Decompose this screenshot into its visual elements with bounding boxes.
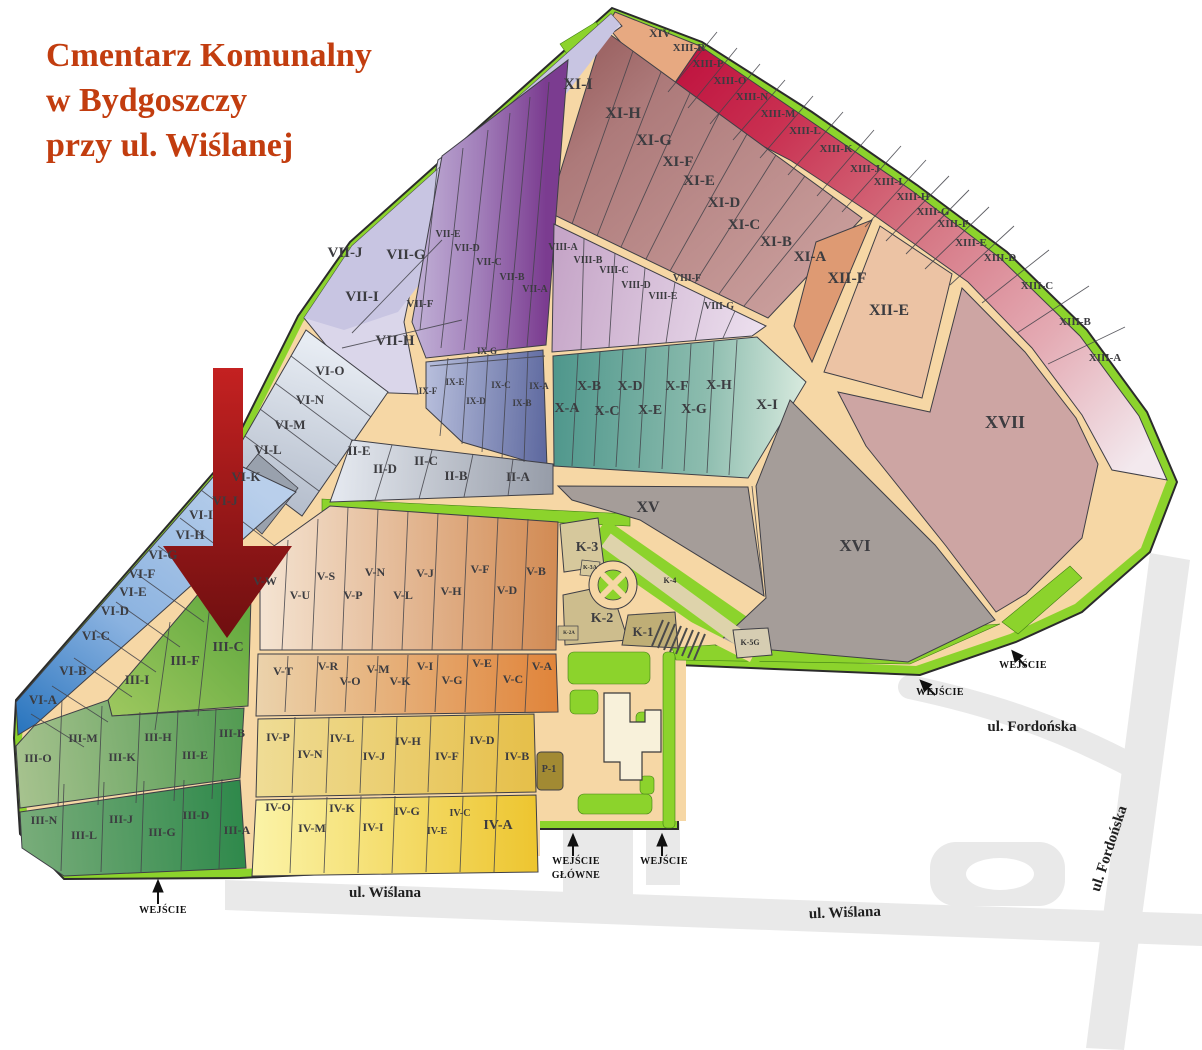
section-label-xiii-o: XIII-O [713,75,746,87]
section-label-xiii-r: XIII-R [673,42,706,54]
section-label-xiii-f: XIII-F [937,218,968,230]
section-label-vi-d: VI-D [101,603,129,618]
section-label-x-i: X-I [756,397,778,413]
section-label-iv-l: IV-L [330,731,354,745]
section-label-v-i: V-I [417,659,434,673]
section-label-x-a: X-A [555,401,581,416]
section-label-viii-f: VIII-F [673,273,701,284]
section-label-vi-n: VI-N [296,392,325,407]
section-label-xiii-e: XIII-E [955,237,987,249]
section-label-xi-g: XI-G [636,132,672,149]
section-label-vii-e: VII-E [435,229,460,240]
section-label-v-k: V-K [389,674,411,688]
section-label-v-s: V-S [317,569,336,583]
section-label-iii-a: III-A [224,823,251,837]
section-label-xi-e: XI-E [683,173,715,189]
section-label-xi-b: XI-B [760,234,792,250]
section-label-vii-b: VII-B [499,272,524,283]
section-label-xiii-n: XIII-N [736,91,768,103]
section-label-xii-e: XII-E [869,302,909,319]
section-label-vii-c: VII-C [476,257,502,268]
section-label-k-1: K-1 [633,624,654,639]
section-label-viii-c: VIII-C [599,265,628,276]
section-label-vi-e: VI-E [119,584,146,599]
small-label-k-2a: K-2A [563,631,575,636]
section-label-vii-f: VII-F [407,298,434,310]
section-label-vii-i: VII-I [345,289,379,305]
section-label-v-g: V-G [441,673,462,687]
section-label-ix-c: IX-C [491,380,511,390]
section-label-xi-f: XI-F [663,154,694,170]
section-label-v-m: V-M [366,662,389,676]
section-label-iii-l: III-L [71,828,97,842]
section-label-ix-e: IX-E [445,377,464,387]
section-label-ii-b: II-B [444,468,467,483]
section-label-xiii-h: XIII-H [896,191,929,203]
section-label-vi-l: VI-L [254,442,282,457]
section-label-iv-p: IV-P [266,730,290,744]
section-label-vi-o: VI-O [316,363,345,378]
section-label-iv-k: IV-K [329,801,355,815]
section-label-iv-n: IV-N [297,747,322,761]
section-label-v-l: V-L [393,588,413,602]
section-label-ix-f: IX-F [419,386,438,396]
section-label-iv-o: IV-O [265,800,291,814]
small-label-k-5g: K-5G [740,638,759,647]
section-label-iii-i: III-I [125,672,150,687]
section-label-iv-m: IV-M [298,821,326,835]
section-label-vii-g: VII-G [386,247,426,263]
entrance-label-główne: GŁÓWNE [552,869,601,881]
section-label-iii-c: III-C [212,640,243,655]
section-label-iv-j: IV-J [363,749,385,763]
section-label-iii-f: III-F [170,654,200,669]
section-label-v-o: V-O [339,674,360,688]
street-label-ul-fordońska: ul. Fordońska [987,719,1077,735]
street-label-ul-wiślana: ul. Wiślana [809,904,882,923]
entrance-label-wejście: WEJŚCIE [916,686,964,698]
section-label-k-3: K-3 [576,540,599,555]
section-label-xi-d: XI-D [708,195,741,211]
section-label-x-e: X-E [638,403,662,418]
section-label-xvii: XVII [985,412,1025,432]
section-label-vi-m: VI-M [274,417,305,432]
section-label-viii-e: VIII-E [649,291,678,302]
section-label-v-e: V-E [472,656,492,670]
section-label-ix-g: IX-G [477,346,497,356]
section-label-vi-k: VI-K [232,469,262,484]
section-label-iii-o: III-O [24,751,51,765]
green-patch [663,652,675,828]
section-label-xiii-a: XIII-A [1089,352,1121,364]
section-label-iv-d: IV-D [469,733,494,747]
section-label-x-c: X-C [595,404,620,419]
section-label-iii-d: III-D [183,808,210,822]
section-label-iii-g: III-G [148,825,175,839]
map-title-line2: w Bydgoszczy [46,79,506,124]
section-label-v-u: V-U [290,588,311,602]
section-label-iv-c: IV-C [450,808,471,819]
section-label-vi-h: VI-H [176,527,205,542]
section-label-iii-j: III-J [109,812,133,826]
section-label-vi-j: VI-J [212,493,238,508]
section-label-vi-a: VI-A [29,692,58,707]
section-label-vii-j: VII-J [327,245,363,261]
section-label-iii-b: III-B [219,726,245,740]
section-label-xiii-l: XIII-L [789,125,821,137]
cemetery-map: XIVXIII-RXIII-PXIII-OXIII-NXIII-MXIII-LX… [0,0,1202,1050]
section-label-iv-g: IV-G [394,804,420,818]
green-patch [578,794,652,814]
section-label-v-n: V-N [365,565,386,579]
section-label-vi-f: VI-F [129,566,156,581]
section-label-xiii-c: XIII-C [1021,280,1053,292]
section-label-ii-a: II-A [506,469,530,484]
section-label-v-d: V-D [497,583,518,597]
section-label-iv-a: IV-A [483,818,513,833]
small-label-k-4: K-4 [664,576,677,585]
green-patch [568,652,650,684]
section-label-viii-g: VIII-G [704,301,734,312]
map-title-line3: przy ul. Wiślanej [46,124,506,169]
section-label-iii-m: III-M [68,731,97,745]
section-label-ii-c: II-C [414,453,438,468]
section-label-viii-a: VIII-A [548,242,578,253]
section-label-p-1: P-1 [542,764,556,775]
street-fordonska [1086,553,1190,1050]
section-label-v-c: V-C [503,672,523,686]
green-patch [570,690,598,714]
section-label-ix-b: IX-B [512,398,531,408]
section-v-upper-row [260,506,558,650]
section-label-v-r: V-R [318,659,339,673]
section-label-xv: XV [636,499,660,516]
entrance-label-wejście: WEJŚCIE [552,855,600,867]
section-label-xiii-b: XIII-B [1059,316,1091,328]
bus-loop-island [966,858,1034,890]
section-label-v-f: V-F [470,562,489,576]
section-label-v-t: V-T [273,664,293,678]
section-label-ii-d: II-D [373,461,397,476]
section-label-vii-h: VII-H [375,333,415,349]
section-label-iii-h: III-H [144,730,172,744]
section-label-xi-a: XI-A [794,249,827,265]
section-label-xiii-g: XIII-G [916,206,949,218]
street-label-ul-wiślana: ul. Wiślana [349,885,421,901]
entrance-arrow-southwest [153,880,163,904]
section-label-xi-c: XI-C [728,217,761,233]
section-label-v-b: V-B [526,564,546,578]
section-label-vii-a: VII-A [522,284,548,295]
section-label-x-g: X-G [681,402,707,417]
section-label-iii-e: III-E [182,748,208,762]
section-label-ix-d: IX-D [466,396,486,406]
section-label-iii-n: III-N [31,813,58,827]
section-label-vi-i: VI-I [189,507,213,522]
section-label-xi-h: XI-H [605,105,641,122]
section-label-vi-c: VI-C [82,628,110,643]
section-label-v-j: V-J [416,566,434,580]
section-label-vii-d: VII-D [454,243,480,254]
section-label-v-w: V-W [253,574,277,588]
section-label-xiv: XIV [649,26,671,40]
entrance-label-wejście: WEJŚCIE [139,904,187,916]
section-label-vi-g: VI-G [149,547,178,562]
section-label-x-b: X-B [577,379,601,394]
section-label-ii-e: II-E [347,443,370,458]
entrance-label-wejście: WEJŚCIE [640,855,688,867]
section-label-xiii-m: XIII-M [761,108,796,120]
map-title: Cmentarz Komunalny w Bydgoszczy przy ul.… [46,34,506,169]
section-label-iv-b: IV-B [505,749,529,763]
map-title-line1: Cmentarz Komunalny [46,34,506,79]
section-label-iv-e: IV-E [427,826,448,837]
section-label-iv-h: IV-H [395,734,421,748]
section-label-k-2: K-2 [591,611,614,626]
section-label-xiii-i: XIII-I [874,176,903,188]
section-label-v-h: V-H [440,584,462,598]
section-label-xvi: XVI [839,536,871,555]
entrance-label-wejście: WEJŚCIE [999,659,1047,671]
section-label-iv-i: IV-I [362,820,383,834]
section-label-vi-b: VI-B [59,663,87,678]
section-label-ix-a: IX-A [529,381,549,391]
section-label-v-a: V-A [532,659,553,673]
section-label-x-d: X-D [618,379,643,394]
section-label-x-f: X-F [665,379,688,394]
section-label-xiii-d: XIII-D [984,252,1016,264]
section-label-xiii-p: XIII-P [692,58,723,70]
section-label-xiii-j: XIII-J [850,163,880,175]
section-label-viii-d: VIII-D [621,280,650,291]
section-label-xiii-k: XIII-K [819,143,852,155]
small-label-k-3a: K-3A [583,565,598,571]
section-label-xii-f: XII-F [827,270,866,287]
section-label-iii-k: III-K [108,750,136,764]
section-label-iv-f: IV-F [435,749,459,763]
section-label-xi-i: XI-I [563,76,592,93]
section-label-x-h: X-H [706,378,732,393]
section-label-v-p: V-P [343,588,362,602]
